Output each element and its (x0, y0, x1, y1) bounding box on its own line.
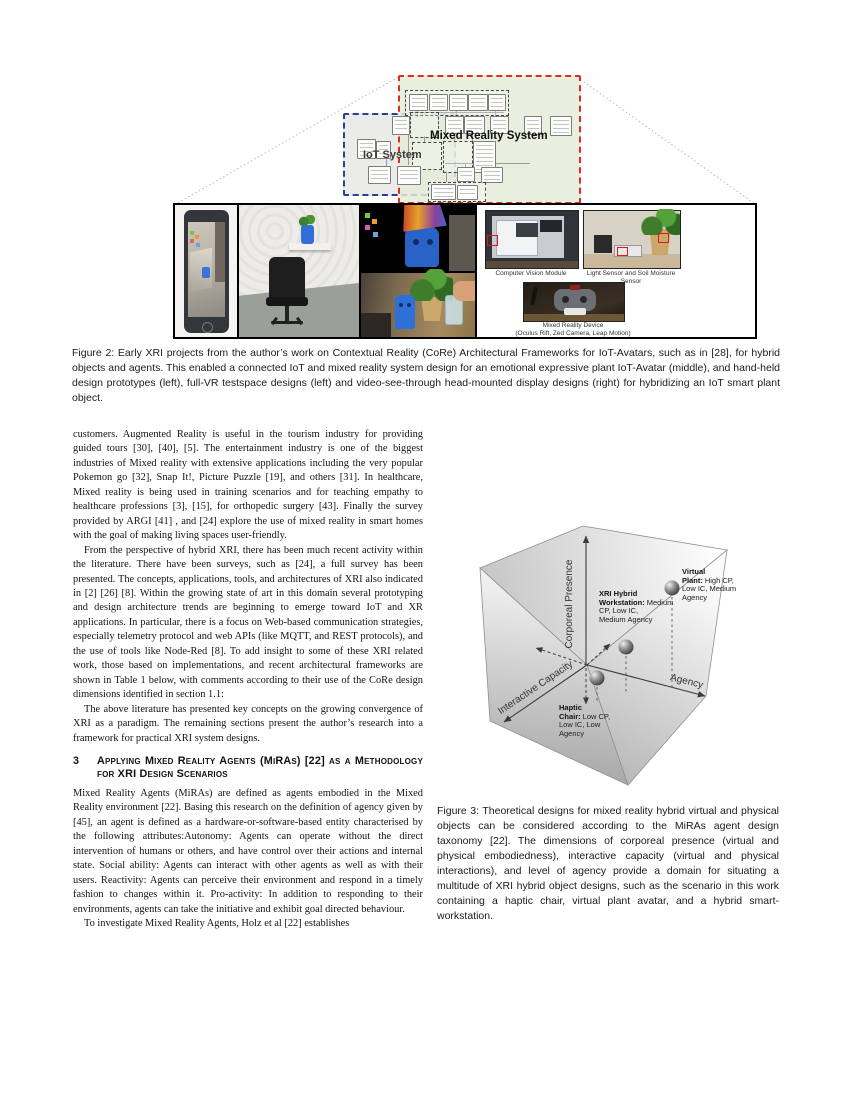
section-3-heading: 3 Applying Mixed Reality Agents (MiRAs) … (73, 755, 423, 782)
figure2-caption: Figure 2: Early XRI projects from the au… (72, 346, 780, 406)
caption-computer-vision: Computer Vision Module (479, 270, 583, 278)
axis-corporeal-presence: Corporeal Presence (564, 559, 575, 648)
figure3-caption: Figure 3: Theoretical designs for mixed … (437, 804, 779, 924)
left-column: customers. Augmented Reality is useful i… (73, 428, 423, 932)
section-title: Applying Mixed Reality Agents (MiRAs) [2… (97, 755, 423, 782)
mixed-reality-system-label: Mixed Reality System (430, 130, 576, 142)
photo-mr-headset (523, 282, 625, 322)
virtual-plant-point (665, 581, 680, 596)
paragraph: Mixed Reality Agents (MiRAs) are defined… (73, 787, 423, 917)
paragraph: To investigate Mixed Reality Agents, Hol… (73, 917, 423, 931)
haptic-chair-label: Haptic Chair:Low CP, Low IC, Low Agency (559, 704, 619, 738)
paragraph: customers. Augmented Reality is useful i… (73, 428, 423, 544)
virtual-plant-label: Virtual Plant:High CP, Low IC, Medium Ag… (682, 568, 744, 602)
photo-computer-vision (485, 210, 579, 269)
photo-phone-prototype (175, 205, 237, 337)
photo-vr-room (239, 205, 359, 337)
caption-mr-device: Mixed Reality Device (Oculus Rift, Zed C… (507, 322, 639, 337)
photo-avatar-closeups (361, 205, 475, 337)
section-number: 3 (73, 755, 97, 782)
paper-page: Mixed Reality System IoT System (0, 0, 850, 1100)
xri-workstation-point (619, 640, 634, 655)
figure3-cube: Corporeal Presence Interactive Capacity … (455, 518, 775, 800)
xri-workstation-label: XRI Hybrid Workstation:Medium CP, Low IC… (599, 590, 653, 624)
photo-hmd-block: Computer Vision Module Light Sensor and … (477, 205, 755, 337)
photo-plant-sensors (583, 210, 681, 269)
figure2-photo-strip: Computer Vision Module Light Sensor and … (173, 203, 757, 339)
paragraph: From the perspective of hybrid XRI, ther… (73, 544, 423, 703)
paragraph: The above literature has presented key c… (73, 703, 423, 746)
iot-system-label: IoT System (363, 149, 443, 161)
haptic-chair-point (590, 671, 605, 686)
